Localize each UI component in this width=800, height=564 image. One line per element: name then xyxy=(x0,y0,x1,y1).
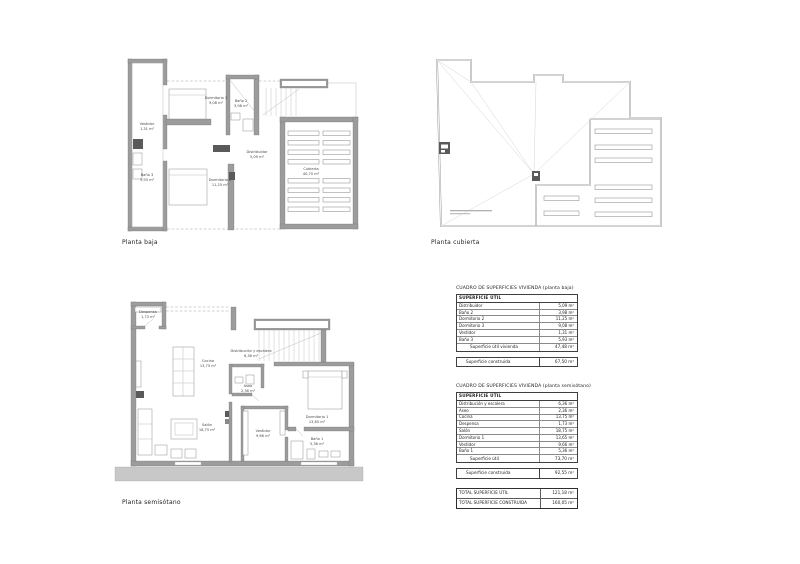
row-value: 1,73 m² xyxy=(540,421,577,427)
room-label-dormitorio3: Dormitorio 3 xyxy=(205,96,228,100)
row-value: 9,66 m² xyxy=(540,442,577,448)
row-label: Despensa xyxy=(457,421,540,427)
surface-tables-column: CUADRO DE SUPERFICIES VIVIENDA (planta b… xyxy=(456,286,578,509)
chimney-center xyxy=(532,171,540,181)
room-label-cubierta: Cubierta xyxy=(303,167,318,171)
room-label-dormitorio1: Dormitorio 1 xyxy=(306,415,329,419)
row-value: 1,31 m² xyxy=(540,330,577,336)
table-row: Dormitorio 1 13,65 m² xyxy=(457,435,577,442)
room-area-dormitorio3: 9,08 m² xyxy=(209,101,224,105)
construida-box-planta-baja: Superficie construida 67,50 m² xyxy=(456,357,578,368)
room-label-dormitorio2: Dormitorio 2 xyxy=(209,178,232,182)
surface-table-planta-baja: SUPERFICIE ÚTIL Distribuidor 5,09 m² Bañ… xyxy=(456,294,578,351)
table-header: SUPERFICIE ÚTIL xyxy=(457,295,577,303)
room-label-aseo: Aseo xyxy=(244,384,253,388)
total-label: Superficie útil vivienda xyxy=(457,344,540,351)
room-area-bano3: 5,93 m² xyxy=(140,178,155,182)
total-util-value: 121,18 m² xyxy=(540,489,577,498)
room-area-dormitorio1: 13,65 m² xyxy=(309,420,326,424)
table-row: Dormitorio 3 9,08 m² xyxy=(457,323,577,330)
room-area-bano1: 5,36 m² xyxy=(310,442,325,446)
room-area-cocina: 13,75 m² xyxy=(200,364,217,368)
room-area-vestidor-s: 9,66 m² xyxy=(256,434,271,438)
total-value: 47,48 m² xyxy=(540,344,577,351)
row-value: 5,09 m² xyxy=(540,303,577,309)
floor-plan-planta-semisotano: Despensa 1,73 m² Cocina 13,75 m² Distrib… xyxy=(111,299,363,497)
room-label-cocina: Cocina xyxy=(202,359,214,363)
table-row: Baño 3 5,93 m² xyxy=(457,337,577,344)
room-label-distribucion: Distribución y escalera xyxy=(230,349,271,353)
room-area-distribuidor: 5,09 m² xyxy=(250,155,265,159)
room-area-dormitorio2: 11,25 m² xyxy=(212,183,229,187)
table-row: Distribución y escalera 6,36 m² xyxy=(457,401,577,408)
total-label: Superficie útil xyxy=(457,455,540,462)
table-row: Vestidor 1,31 m² xyxy=(457,330,577,337)
room-area-bano2: 3,98 m² xyxy=(234,104,249,108)
floor-plan-planta-baja: Vestidor 1,31 m² Baño 3 5,93 m² Dormitor… xyxy=(120,57,361,237)
table-total-row: Superficie útil vivienda 47,48 m² xyxy=(457,344,577,351)
row-label: Baño 3 xyxy=(457,337,540,343)
total-util-label: TOTAL SUPERFICIE ÚTIL xyxy=(457,489,540,498)
room-label-salon: Salón xyxy=(202,423,212,427)
row-value: 11,25 m² xyxy=(540,316,577,322)
row-label: Vestidor xyxy=(457,330,540,336)
room-label-vestidor-s: Vestidor xyxy=(256,429,271,433)
row-value: 18,75 m² xyxy=(540,428,577,434)
total-util-row: TOTAL SUPERFICIE ÚTIL 121,18 m² xyxy=(457,489,577,499)
construida-value: 92,55 m² xyxy=(540,469,577,478)
caption-planta-semisotano: Planta semisótano xyxy=(122,499,181,506)
room-area-distribucion: 6,36 m² xyxy=(244,354,259,358)
room-label-vestidor: Vestidor xyxy=(140,122,155,126)
row-label: Distribuidor xyxy=(457,303,540,309)
row-value: 6,36 m² xyxy=(540,401,577,407)
room-area-cubierta: 40,70 m² xyxy=(303,172,320,176)
construida-label: Superficie construida xyxy=(457,469,540,478)
table-row: Salón 18,75 m² xyxy=(457,428,577,435)
row-label: Dormitorio 2 xyxy=(457,316,540,322)
caption-planta-baja: Planta baja xyxy=(122,239,158,246)
room-area-salon: 18,75 m² xyxy=(199,428,216,432)
row-value: 9,08 m² xyxy=(540,323,577,329)
room-label-bano1: Baño 1 xyxy=(311,437,324,441)
total-construida-label: TOTAL SUPERFICIE CONSTRUIDA xyxy=(457,499,540,508)
row-label: Dormitorio 3 xyxy=(457,323,540,329)
planta-baja-stairs xyxy=(263,88,299,116)
row-value: 13,75 m² xyxy=(540,415,577,421)
room-area-vestidor: 1,31 m² xyxy=(140,127,155,131)
construida-value: 67,50 m² xyxy=(540,358,577,367)
construida-box-planta-semisotano: Superficie construida 92,55 m² xyxy=(456,468,578,479)
total-construida-row: TOTAL SUPERFICIE CONSTRUIDA 160,05 m² xyxy=(457,499,577,508)
row-label: Baño 2 xyxy=(457,310,540,316)
semisotano-room-labels: Despensa 1,73 m² Cocina 13,75 m² Distrib… xyxy=(139,310,328,446)
room-area-aseo: 2,36 m² xyxy=(241,389,256,393)
table-row: Distribuidor 5,09 m² xyxy=(457,303,577,310)
row-label: Baño 1 xyxy=(457,448,540,454)
roof-plan-planta-cubierta xyxy=(428,50,678,235)
chimney-left xyxy=(439,142,450,154)
room-label-despensa: Despensa xyxy=(139,310,157,314)
room-label-bano2: Baño 2 xyxy=(235,99,248,103)
total-construida-value: 160,05 m² xyxy=(540,499,577,508)
ground-band xyxy=(115,467,363,481)
table-row: Baño 1 5,36 m² xyxy=(457,448,577,455)
room-label-bano3: Baño 3 xyxy=(141,173,154,177)
table-header: SUPERFICIE ÚTIL xyxy=(457,393,577,401)
table-title-planta-baja: CUADRO DE SUPERFICIES VIVIENDA (planta b… xyxy=(456,286,578,291)
row-label: Distribución y escalera xyxy=(457,401,540,407)
row-value: 3,98 m² xyxy=(540,310,577,316)
table-title-planta-semisotano: CUADRO DE SUPERFICIES VIVIENDA (planta s… xyxy=(456,384,578,389)
row-value: 13,65 m² xyxy=(540,435,577,441)
row-label: Salón xyxy=(457,428,540,434)
row-label: Dormitorio 1 xyxy=(457,435,540,441)
row-label: Aseo xyxy=(457,408,540,414)
construida-label: Superficie construida xyxy=(457,358,540,367)
totals-table: TOTAL SUPERFICIE ÚTIL 121,18 m² TOTAL SU… xyxy=(456,488,578,509)
table-total-row: Superficie útil 73,70 m² xyxy=(457,455,577,462)
row-value: 5,36 m² xyxy=(540,448,577,454)
room-label-distribuidor: Distribuidor xyxy=(246,150,268,154)
surface-table-planta-semisotano: SUPERFICIE ÚTIL Distribución y escalera … xyxy=(456,392,578,463)
row-value: 2,36 m² xyxy=(540,408,577,414)
semisotano-stairs xyxy=(259,330,321,361)
total-value: 73,70 m² xyxy=(540,455,577,462)
room-area-despensa: 1,73 m² xyxy=(141,315,156,319)
row-value: 5,93 m² xyxy=(540,337,577,343)
row-label: Vestidor xyxy=(457,442,540,448)
drawing-sheet: Vestidor 1,31 m² Baño 3 5,93 m² Dormitor… xyxy=(0,0,800,564)
row-label: Cocina xyxy=(457,415,540,421)
caption-planta-cubierta: Planta cubierta xyxy=(431,239,479,246)
